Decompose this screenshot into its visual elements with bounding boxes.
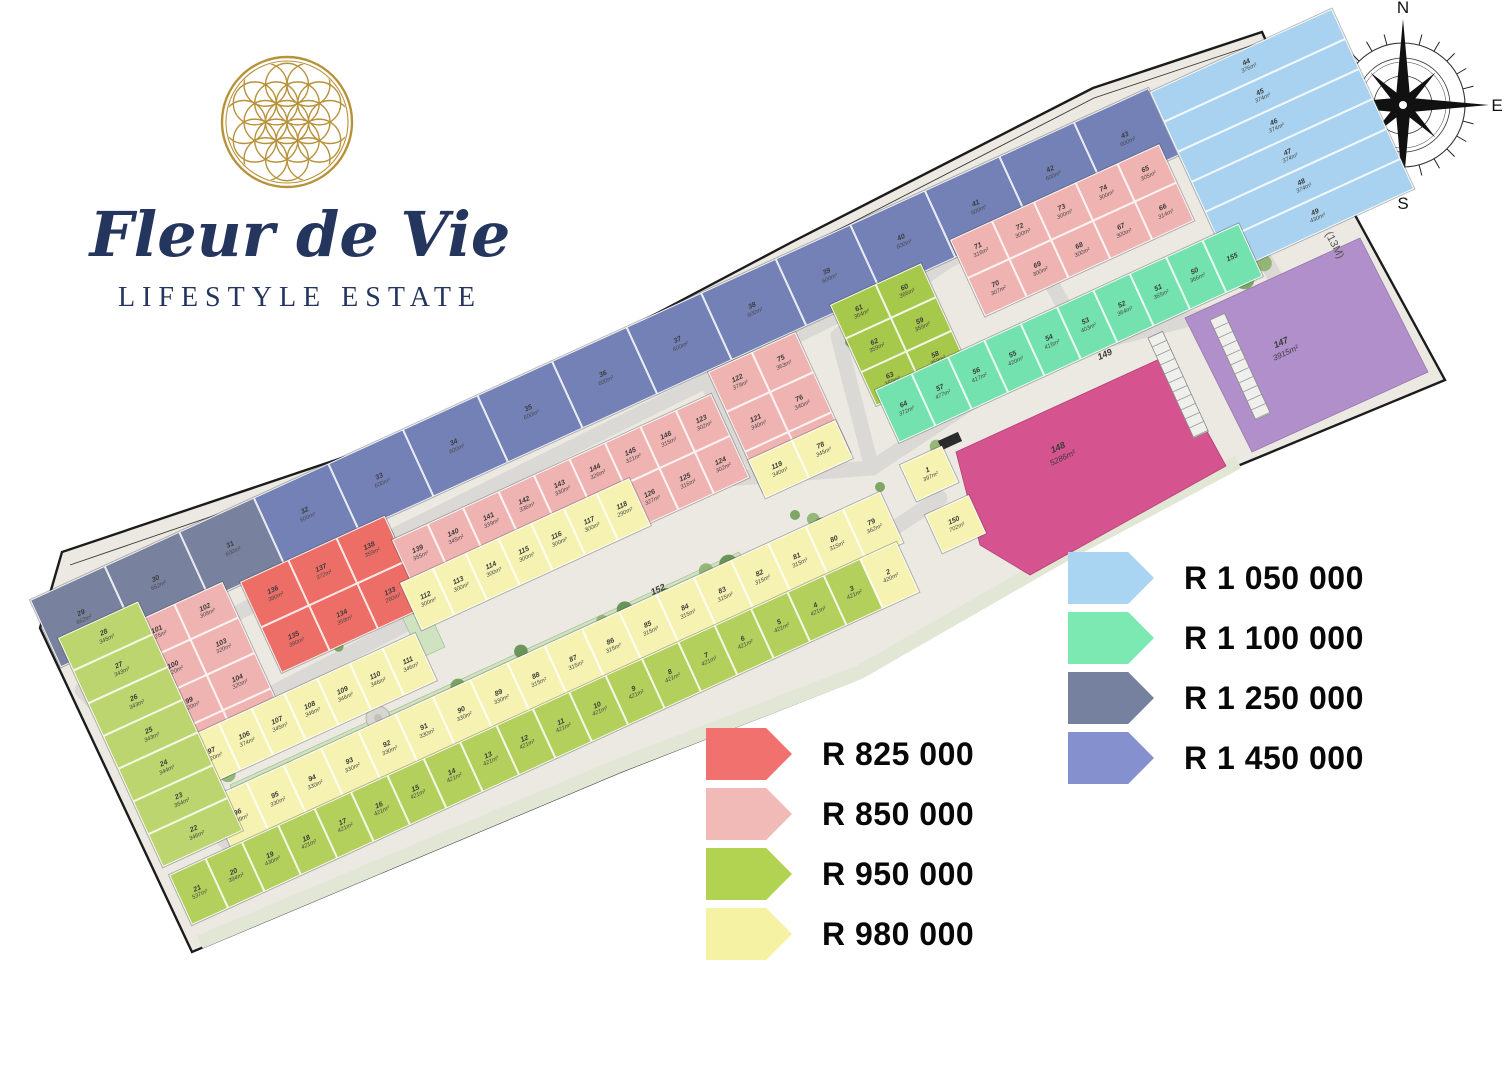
price-label: R 1 100 000	[1184, 620, 1364, 657]
price-label: R 950 000	[822, 856, 974, 893]
legend-right-item-1: R 1 100 000	[1068, 612, 1364, 664]
legend-left: R 825 000R 850 000R 950 000R 980 000	[706, 728, 974, 968]
price-tag-icon	[1068, 612, 1154, 664]
compass-e: E	[1491, 96, 1502, 115]
legend-right-item-3: R 1 450 000	[1068, 732, 1364, 784]
compass-n: N	[1397, 0, 1409, 17]
price-label: R 1 450 000	[1184, 740, 1364, 777]
brand-name: Fleur de Vie	[30, 198, 570, 271]
price-label: R 1 250 000	[1184, 680, 1364, 717]
compass-s: S	[1397, 194, 1408, 213]
brand-tagline: LIFESTYLE ESTATE	[30, 282, 570, 314]
legend-right-item-2: R 1 250 000	[1068, 672, 1364, 724]
price-tag-icon	[1068, 672, 1154, 724]
price-tag-icon	[1068, 552, 1154, 604]
flower-of-life-logo	[212, 45, 362, 200]
price-label: R 850 000	[822, 796, 974, 833]
legend-right-item-0: R 1 050 000	[1068, 552, 1364, 604]
legend-right: R 1 050 000R 1 100 000R 1 250 000R 1 450…	[1068, 552, 1364, 792]
price-tag-icon	[706, 908, 792, 960]
legend-left-item-0: R 825 000	[706, 728, 974, 780]
price-label: R 980 000	[822, 916, 974, 953]
price-tag-icon	[706, 728, 792, 780]
price-label: R 1 050 000	[1184, 560, 1364, 597]
site-plan-page: AIMLEE LANE GUSTAV CRESCENT GATE HOUSE P…	[0, 0, 1506, 1066]
price-label: R 825 000	[822, 736, 974, 773]
price-tag-icon	[706, 788, 792, 840]
legend-left-item-1: R 850 000	[706, 788, 974, 840]
legend-left-item-3: R 980 000	[706, 908, 974, 960]
legend-left-item-2: R 950 000	[706, 848, 974, 900]
price-tag-icon	[1068, 732, 1154, 784]
price-tag-icon	[706, 848, 792, 900]
